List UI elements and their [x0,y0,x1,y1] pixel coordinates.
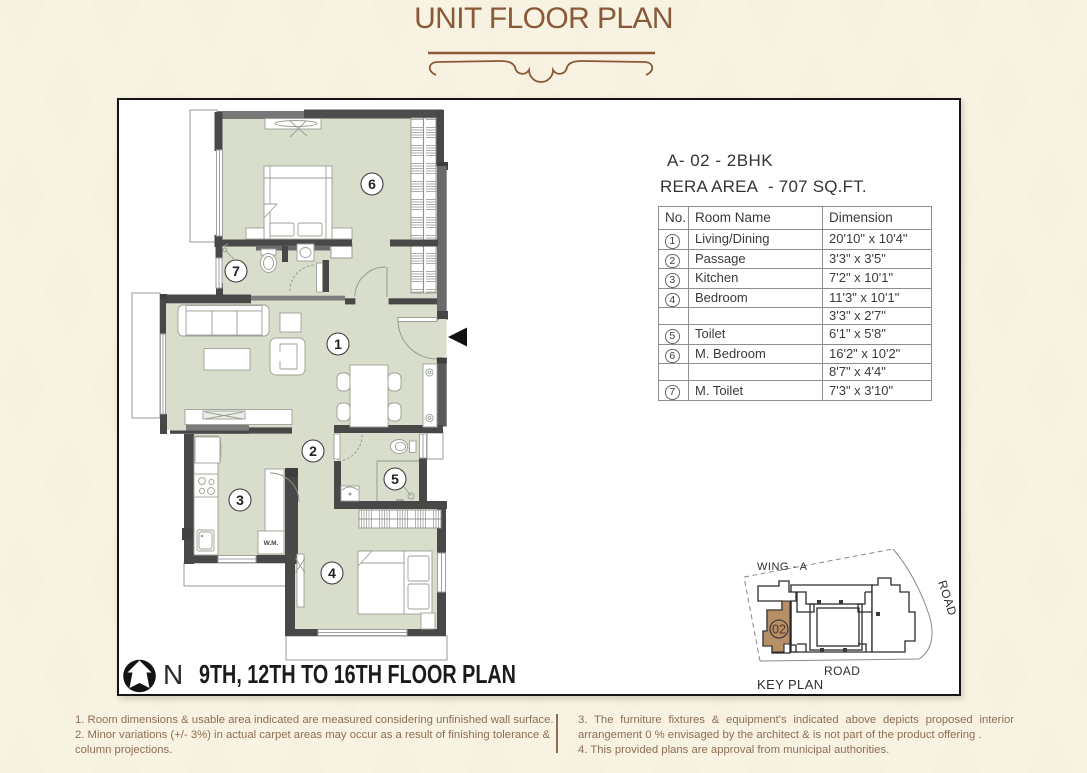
svg-text:ROAD: ROAD [824,664,860,678]
svg-text:W.M.: W.M. [264,540,279,547]
svg-text:3: 3 [236,492,244,508]
svg-text:1: 1 [334,336,342,352]
svg-text:2: 2 [309,443,317,459]
svg-text:7: 7 [232,263,240,279]
svg-text:WING - A: WING - A [757,561,808,573]
svg-text:02: 02 [772,623,786,637]
svg-text:5: 5 [391,471,399,487]
svg-text:6: 6 [368,176,376,192]
svg-text:4: 4 [328,565,336,581]
svg-text:KEY PLAN: KEY PLAN [757,677,824,692]
svg-text:ROAD: ROAD [935,579,960,618]
